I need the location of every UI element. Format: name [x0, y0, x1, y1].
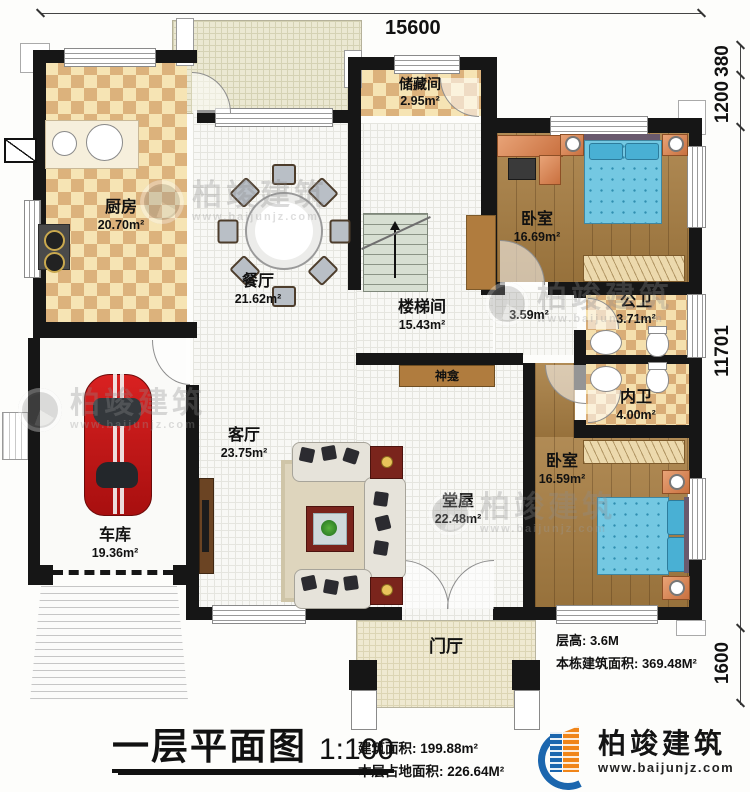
- wall: [173, 565, 199, 585]
- car: [84, 374, 152, 516]
- kitchen-sink: [86, 124, 123, 161]
- porch-pedestal: [351, 690, 377, 730]
- wall: [493, 607, 535, 620]
- wall: [348, 57, 361, 290]
- desk: [497, 135, 563, 157]
- room-label-bedroom2: 卧室 16.59m²: [516, 452, 608, 488]
- plant: [321, 520, 337, 536]
- footprint-area-note: 本层占地面积: 226.64M²: [358, 761, 538, 784]
- floor-plan-sheet: 神龛: [0, 0, 750, 792]
- lamp: [669, 580, 685, 596]
- table-lamp: [381, 456, 393, 468]
- porch-column: [512, 660, 540, 690]
- table-lamp: [381, 584, 393, 596]
- wall: [28, 565, 53, 585]
- wall: [33, 322, 197, 338]
- side-steps: [2, 412, 30, 460]
- floor-area-note: 建筑面积: 199.88m²: [358, 738, 538, 761]
- brand-name: 柏竣建筑: [598, 729, 734, 760]
- pillow: [625, 143, 659, 160]
- cushion: [343, 575, 359, 591]
- chimney: [4, 138, 37, 163]
- wall: [523, 363, 535, 620]
- cushion: [299, 447, 316, 464]
- logo-tower-orange: [563, 726, 579, 772]
- stair-cabinet: [466, 215, 496, 290]
- tv: [202, 500, 209, 552]
- title-block: 一层平面图 1:100: [112, 728, 394, 773]
- cushion: [321, 445, 337, 461]
- room-label-hall: 堂屋 22.48m²: [412, 492, 504, 528]
- shrine-label: 神龛: [435, 369, 459, 383]
- plan-title: 一层平面图: [112, 728, 307, 765]
- stair-direction-line: [394, 228, 396, 278]
- wall: [28, 338, 40, 585]
- dimension-right-value: 11701: [712, 316, 734, 386]
- dining-table: [245, 192, 323, 270]
- room-label-corridor: 3.59m²: [493, 308, 565, 324]
- dining-chair: [330, 220, 351, 244]
- cushion: [373, 491, 389, 507]
- dimension-top-value: 15600: [385, 17, 441, 40]
- lamp: [565, 136, 581, 152]
- window: [215, 108, 333, 127]
- room-label-living: 客厅 23.75m²: [198, 426, 290, 462]
- dining-chair: [272, 164, 296, 185]
- car-stripe: [120, 374, 124, 514]
- desk-return: [539, 155, 561, 185]
- wall: [33, 50, 46, 337]
- window: [212, 605, 306, 624]
- room-label-public-bath: 公卫 3.71m²: [601, 292, 671, 328]
- brand-logo-icon: [536, 722, 590, 782]
- kitchen-floor: [45, 62, 187, 324]
- window: [687, 146, 706, 228]
- kitchen-sink: [52, 131, 77, 156]
- brand-url: www.baijunjz.com: [598, 760, 734, 775]
- stove-burner: [44, 230, 65, 251]
- title-areas: 建筑面积: 199.88m² 本层占地面积: 226.64M²: [358, 738, 538, 784]
- cushion: [301, 575, 318, 592]
- porch-column: [349, 660, 377, 690]
- dimension-right-value: 1600: [712, 637, 734, 689]
- cushion: [373, 540, 389, 556]
- wall: [574, 355, 702, 364]
- dimension-right-value: 1200: [712, 79, 734, 125]
- room-label-garage: 车库 19.36m²: [70, 526, 160, 562]
- window: [394, 55, 460, 74]
- wall: [356, 353, 523, 365]
- logo-tower-blue: [550, 732, 562, 772]
- toilet-tank: [648, 362, 667, 370]
- room-label-storage: 储藏间 2.95m²: [370, 76, 470, 109]
- room-label-private-bath: 内卫 4.00m²: [601, 388, 671, 424]
- car-rear-window: [96, 462, 138, 488]
- dimension-line-right: [740, 45, 741, 705]
- cushion: [323, 579, 339, 595]
- stove-burner: [44, 252, 65, 273]
- computer: [508, 158, 536, 180]
- garage-door-dashed: [53, 570, 173, 575]
- shrine-shelf: 神龛: [399, 365, 495, 387]
- sink: [590, 330, 622, 355]
- room-label-foyer: 门厅: [406, 636, 486, 657]
- pillow: [589, 143, 623, 160]
- foyer-porch-floor: [356, 620, 536, 708]
- room-label-kitchen: 厨房 20.70m²: [81, 198, 161, 234]
- car-windshield: [93, 398, 141, 426]
- stair-up-arrow: [390, 221, 400, 230]
- lamp: [669, 474, 685, 490]
- car-stripe: [113, 374, 117, 514]
- dimension-right-value: 380: [712, 43, 734, 79]
- dimension-line-top: [40, 13, 702, 14]
- lamp: [668, 136, 684, 152]
- toilet: [646, 330, 669, 357]
- window: [64, 48, 156, 67]
- wall: [481, 57, 497, 118]
- bed: [597, 497, 669, 575]
- dining-chair: [218, 220, 239, 244]
- wall: [574, 290, 586, 298]
- room-label-bedroom1: 卧室 16.69m²: [497, 210, 577, 246]
- window: [556, 605, 658, 624]
- bed-headboard: [684, 497, 689, 573]
- brand-logo: 柏竣建筑 www.baijunjz.com: [536, 722, 734, 782]
- room-label-stairwell: 楼梯间 15.43m²: [378, 298, 466, 334]
- driveway-ramp: [30, 586, 188, 700]
- wardrobe: [583, 255, 685, 282]
- room-label-dining: 餐厅 21.62m²: [213, 272, 303, 308]
- window: [687, 294, 706, 358]
- wall: [574, 425, 702, 438]
